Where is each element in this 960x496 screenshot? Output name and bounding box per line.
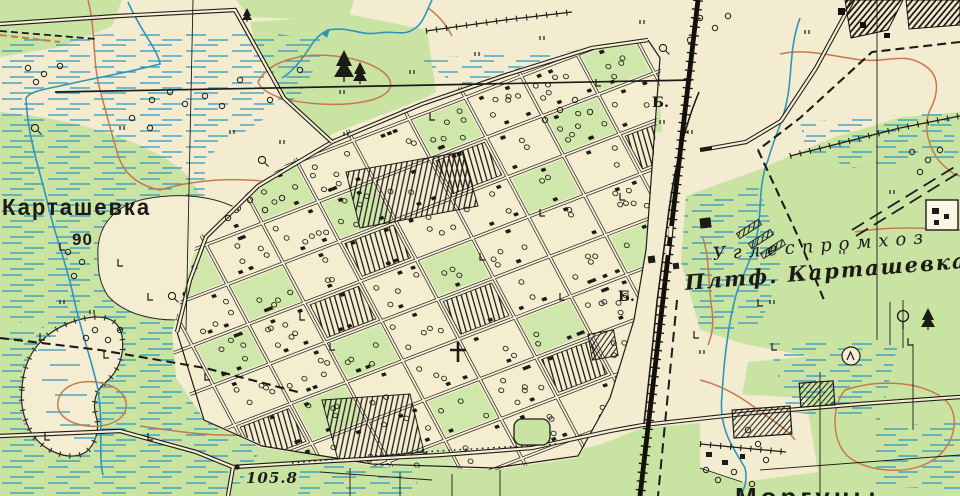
map-canvas: [0, 0, 960, 496]
circle-landmark: [842, 347, 860, 365]
topographic-map: Карташевка 90 Углеспромхоз Плтф. Карташе…: [0, 0, 960, 496]
pond: [514, 419, 550, 445]
building-right-edge: [926, 200, 958, 230]
spot-height-dot: [234, 464, 239, 469]
